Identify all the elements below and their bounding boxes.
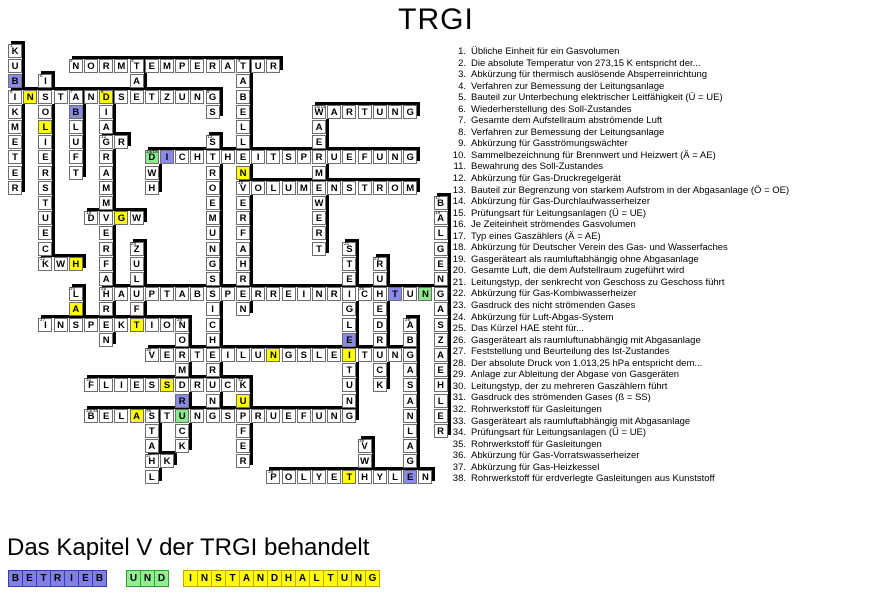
grid-cell[interactable]: P bbox=[221, 287, 235, 301]
grid-cell[interactable]: T bbox=[38, 196, 52, 210]
grid-cell[interactable]: 31F bbox=[84, 378, 98, 392]
grid-cell[interactable]: R bbox=[266, 59, 280, 73]
grid-cell[interactable]: S bbox=[342, 181, 356, 195]
grid-cell[interactable]: G bbox=[342, 409, 356, 423]
grid-cell[interactable]: T bbox=[342, 470, 356, 484]
grid-cell[interactable]: U bbox=[175, 409, 189, 423]
grid-cell[interactable]: G bbox=[403, 150, 417, 164]
grid-cell[interactable]: 29A bbox=[403, 318, 417, 332]
grid-cell[interactable]: S bbox=[145, 378, 159, 392]
grid-cell[interactable]: U bbox=[206, 378, 220, 392]
grid-cell[interactable]: N bbox=[23, 90, 37, 104]
grid-cell[interactable]: U bbox=[312, 409, 326, 423]
grid-cell[interactable]: T bbox=[266, 150, 280, 164]
grid-cell[interactable]: L bbox=[342, 318, 356, 332]
grid-cell[interactable]: E bbox=[342, 150, 356, 164]
grid-cell[interactable]: F bbox=[69, 150, 83, 164]
grid-cell[interactable]: I bbox=[99, 105, 113, 119]
grid-cell[interactable]: U bbox=[236, 394, 250, 408]
grid-cell[interactable]: U bbox=[266, 409, 280, 423]
grid-cell[interactable]: H bbox=[358, 470, 372, 484]
grid-cell[interactable]: 22K bbox=[38, 257, 52, 271]
grid-cell[interactable]: R bbox=[236, 211, 250, 225]
grid-cell[interactable]: 1K bbox=[8, 44, 22, 58]
grid-cell[interactable]: S bbox=[297, 348, 311, 362]
grid-cell[interactable]: R bbox=[434, 424, 448, 438]
grid-cell[interactable]: R bbox=[175, 394, 189, 408]
grid-cell[interactable]: T bbox=[388, 287, 402, 301]
grid-cell[interactable]: T bbox=[358, 348, 372, 362]
grid-cell[interactable]: N bbox=[388, 348, 402, 362]
grid-cell[interactable]: E bbox=[206, 196, 220, 210]
grid-cell[interactable]: I bbox=[38, 135, 52, 149]
grid-cell[interactable]: N bbox=[84, 90, 98, 104]
grid-cell[interactable]: M bbox=[99, 181, 113, 195]
grid-cell[interactable]: A bbox=[221, 59, 235, 73]
grid-cell[interactable]: L bbox=[145, 470, 159, 484]
grid-cell[interactable]: E bbox=[8, 166, 22, 180]
grid-cell[interactable]: H bbox=[145, 181, 159, 195]
grid-cell[interactable]: A bbox=[312, 120, 326, 134]
grid-cell[interactable]: F bbox=[130, 302, 144, 316]
grid-cell[interactable]: G bbox=[403, 348, 417, 362]
grid-cell[interactable]: F bbox=[236, 226, 250, 240]
grid-cell[interactable]: I bbox=[221, 348, 235, 362]
grid-cell[interactable]: B bbox=[8, 74, 22, 88]
grid-cell[interactable]: O bbox=[38, 105, 52, 119]
grid-cell[interactable]: 5I bbox=[38, 74, 52, 88]
grid-cell[interactable]: R bbox=[99, 59, 113, 73]
grid-cell[interactable]: A bbox=[114, 287, 128, 301]
grid-cell[interactable]: C bbox=[206, 318, 220, 332]
grid-cell[interactable]: U bbox=[251, 59, 265, 73]
grid-cell[interactable]: S bbox=[114, 90, 128, 104]
grid-cell[interactable]: G bbox=[114, 211, 128, 225]
grid-cell[interactable]: N bbox=[54, 318, 68, 332]
grid-cell[interactable]: 25H bbox=[99, 287, 113, 301]
grid-cell[interactable]: U bbox=[403, 287, 417, 301]
grid-cell[interactable]: R bbox=[206, 59, 220, 73]
grid-cell[interactable]: N bbox=[388, 105, 402, 119]
grid-cell[interactable]: G bbox=[434, 242, 448, 256]
grid-cell[interactable]: K bbox=[160, 454, 174, 468]
grid-cell[interactable]: L bbox=[236, 135, 250, 149]
grid-cell[interactable]: H bbox=[236, 257, 250, 271]
grid-cell[interactable]: I bbox=[206, 302, 220, 316]
grid-cell[interactable]: W bbox=[130, 211, 144, 225]
grid-cell[interactable]: Z bbox=[434, 333, 448, 347]
grid-cell[interactable]: A bbox=[403, 439, 417, 453]
grid-cell[interactable]: E bbox=[236, 105, 250, 119]
grid-cell[interactable]: G bbox=[342, 302, 356, 316]
grid-cell[interactable]: E bbox=[236, 287, 250, 301]
grid-cell[interactable]: B bbox=[190, 287, 204, 301]
grid-cell[interactable]: I bbox=[342, 348, 356, 362]
grid-cell[interactable]: T bbox=[206, 150, 220, 164]
grid-cell[interactable]: U bbox=[373, 348, 387, 362]
grid-cell[interactable]: A bbox=[99, 272, 113, 286]
grid-cell[interactable]: U bbox=[38, 211, 52, 225]
grid-cell[interactable]: 14/15D bbox=[145, 150, 159, 164]
grid-cell[interactable]: H bbox=[373, 287, 387, 301]
grid-cell[interactable]: U bbox=[373, 105, 387, 119]
grid-cell[interactable]: W bbox=[54, 257, 68, 271]
grid-cell[interactable]: M bbox=[8, 120, 22, 134]
grid-cell[interactable]: B bbox=[236, 90, 250, 104]
grid-cell[interactable]: R bbox=[99, 242, 113, 256]
grid-cell[interactable]: P bbox=[236, 409, 250, 423]
grid-cell[interactable]: L bbox=[236, 348, 250, 362]
grid-cell[interactable]: P bbox=[145, 287, 159, 301]
grid-cell[interactable]: 16V bbox=[236, 181, 250, 195]
grid-cell[interactable]: E bbox=[130, 378, 144, 392]
grid-cell[interactable]: E bbox=[160, 348, 174, 362]
grid-cell[interactable]: 32K bbox=[236, 378, 250, 392]
grid-cell[interactable]: E bbox=[312, 211, 326, 225]
grid-cell[interactable]: L bbox=[297, 470, 311, 484]
grid-cell[interactable]: D bbox=[373, 318, 387, 332]
grid-cell[interactable]: 7A bbox=[69, 90, 83, 104]
grid-cell[interactable]: O bbox=[175, 333, 189, 347]
grid-cell[interactable]: O bbox=[160, 318, 174, 332]
grid-cell[interactable]: E bbox=[236, 439, 250, 453]
grid-cell[interactable]: H bbox=[69, 257, 83, 271]
grid-cell[interactable]: 19A bbox=[434, 211, 448, 225]
grid-cell[interactable]: N bbox=[418, 470, 432, 484]
grid-cell[interactable]: 33/34B bbox=[84, 409, 98, 423]
grid-cell[interactable]: N bbox=[434, 272, 448, 286]
grid-cell[interactable]: U bbox=[130, 287, 144, 301]
grid-cell[interactable]: C bbox=[221, 378, 235, 392]
grid-cell[interactable]: E bbox=[99, 318, 113, 332]
grid-cell[interactable]: R bbox=[373, 181, 387, 195]
grid-cell[interactable]: E bbox=[434, 257, 448, 271]
grid-cell[interactable]: U bbox=[327, 150, 341, 164]
grid-cell[interactable]: T bbox=[54, 90, 68, 104]
grid-cell[interactable]: M bbox=[206, 211, 220, 225]
grid-cell[interactable]: O bbox=[84, 59, 98, 73]
grid-cell[interactable]: S bbox=[206, 272, 220, 286]
grid-cell[interactable]: A bbox=[130, 74, 144, 88]
grid-cell[interactable]: U bbox=[175, 90, 189, 104]
grid-cell[interactable]: U bbox=[251, 348, 265, 362]
grid-cell[interactable]: A bbox=[99, 166, 113, 180]
grid-cell[interactable]: R bbox=[190, 378, 204, 392]
grid-cell[interactable]: A bbox=[236, 74, 250, 88]
grid-cell[interactable]: U bbox=[282, 181, 296, 195]
grid-cell[interactable]: V bbox=[99, 211, 113, 225]
grid-cell[interactable]: M bbox=[114, 59, 128, 73]
grid-cell[interactable]: E bbox=[38, 226, 52, 240]
grid-cell[interactable]: N bbox=[206, 242, 220, 256]
grid-cell[interactable]: S bbox=[69, 318, 83, 332]
grid-cell[interactable]: T bbox=[190, 348, 204, 362]
grid-cell[interactable]: 35S bbox=[145, 409, 159, 423]
grid-cell[interactable]: E bbox=[145, 59, 159, 73]
grid-cell[interactable]: 6I bbox=[8, 90, 22, 104]
grid-cell[interactable]: R bbox=[8, 181, 22, 195]
grid-cell[interactable]: 30V bbox=[145, 348, 159, 362]
grid-cell[interactable]: R bbox=[312, 226, 326, 240]
grid-cell[interactable]: R bbox=[206, 166, 220, 180]
grid-cell[interactable]: E bbox=[373, 302, 387, 316]
grid-cell[interactable]: T bbox=[69, 166, 83, 180]
grid-cell[interactable]: R bbox=[251, 287, 265, 301]
grid-cell[interactable]: T bbox=[342, 257, 356, 271]
grid-cell[interactable]: N bbox=[403, 409, 417, 423]
grid-cell[interactable]: M bbox=[403, 181, 417, 195]
grid-cell[interactable]: E bbox=[206, 348, 220, 362]
grid-cell[interactable]: 23R bbox=[373, 257, 387, 271]
grid-cell[interactable]: F bbox=[99, 257, 113, 271]
grid-cell[interactable]: N bbox=[388, 150, 402, 164]
grid-cell[interactable]: M bbox=[160, 59, 174, 73]
grid-cell[interactable]: R bbox=[99, 150, 113, 164]
grid-cell[interactable]: W bbox=[145, 166, 159, 180]
grid-cell[interactable]: M bbox=[99, 196, 113, 210]
grid-cell[interactable]: 37H bbox=[145, 454, 159, 468]
grid-cell[interactable]: F bbox=[358, 150, 372, 164]
grid-cell[interactable]: A bbox=[175, 287, 189, 301]
grid-cell[interactable]: S bbox=[221, 409, 235, 423]
grid-cell[interactable]: L bbox=[69, 120, 83, 134]
grid-cell[interactable]: H bbox=[434, 378, 448, 392]
grid-cell[interactable]: S bbox=[206, 287, 220, 301]
grid-cell[interactable]: G bbox=[282, 348, 296, 362]
grid-cell[interactable]: A bbox=[130, 409, 144, 423]
grid-cell[interactable]: Z bbox=[160, 90, 174, 104]
grid-cell[interactable]: 12G bbox=[99, 135, 113, 149]
grid-cell[interactable]: T bbox=[145, 90, 159, 104]
grid-cell[interactable]: F bbox=[297, 409, 311, 423]
grid-cell[interactable]: L bbox=[312, 348, 326, 362]
grid-cell[interactable]: K bbox=[114, 318, 128, 332]
grid-cell[interactable]: E bbox=[342, 333, 356, 347]
grid-cell[interactable]: E bbox=[99, 409, 113, 423]
grid-cell[interactable]: K bbox=[175, 439, 189, 453]
grid-cell[interactable]: M bbox=[297, 181, 311, 195]
grid-cell[interactable]: T bbox=[342, 363, 356, 377]
grid-cell[interactable]: N bbox=[342, 394, 356, 408]
grid-cell[interactable]: T bbox=[8, 150, 22, 164]
grid-cell[interactable]: C bbox=[38, 242, 52, 256]
grid-cell[interactable]: Y bbox=[312, 470, 326, 484]
grid-cell[interactable]: 3T bbox=[130, 59, 144, 73]
grid-cell[interactable]: G bbox=[206, 409, 220, 423]
grid-cell[interactable]: L bbox=[38, 120, 52, 134]
grid-cell[interactable]: I bbox=[342, 287, 356, 301]
grid-cell[interactable]: S bbox=[206, 105, 220, 119]
grid-cell[interactable]: 13S bbox=[206, 135, 220, 149]
grid-cell[interactable]: U bbox=[206, 226, 220, 240]
grid-cell[interactable]: L bbox=[130, 272, 144, 286]
grid-cell[interactable]: N bbox=[266, 348, 280, 362]
grid-cell[interactable]: U bbox=[8, 59, 22, 73]
grid-cell[interactable]: 8D bbox=[99, 90, 113, 104]
grid-cell[interactable]: R bbox=[38, 166, 52, 180]
grid-cell[interactable]: S bbox=[403, 378, 417, 392]
grid-cell[interactable]: L bbox=[434, 226, 448, 240]
grid-cell[interactable]: 18D bbox=[84, 211, 98, 225]
grid-cell[interactable]: R bbox=[175, 348, 189, 362]
grid-cell[interactable]: C bbox=[175, 150, 189, 164]
grid-cell[interactable]: G bbox=[403, 454, 417, 468]
grid-cell[interactable]: U bbox=[342, 378, 356, 392]
grid-cell[interactable]: A bbox=[434, 302, 448, 316]
grid-cell[interactable]: E bbox=[8, 135, 22, 149]
grid-cell[interactable]: A bbox=[327, 105, 341, 119]
grid-cell[interactable]: I bbox=[114, 378, 128, 392]
grid-cell[interactable]: E bbox=[342, 272, 356, 286]
grid-cell[interactable]: N bbox=[190, 90, 204, 104]
grid-cell[interactable]: B bbox=[403, 333, 417, 347]
grid-cell[interactable]: N bbox=[418, 287, 432, 301]
grid-cell[interactable]: M bbox=[312, 166, 326, 180]
grid-cell[interactable]: T bbox=[130, 318, 144, 332]
grid-cell[interactable]: S bbox=[38, 181, 52, 195]
grid-cell[interactable]: L bbox=[434, 394, 448, 408]
grid-cell[interactable]: N bbox=[99, 333, 113, 347]
grid-cell[interactable]: E bbox=[190, 59, 204, 73]
grid-cell[interactable]: E bbox=[99, 226, 113, 240]
grid-cell[interactable]: 26C bbox=[358, 287, 372, 301]
grid-cell[interactable]: S bbox=[38, 90, 52, 104]
grid-cell[interactable]: H bbox=[206, 333, 220, 347]
grid-cell[interactable]: T bbox=[160, 409, 174, 423]
grid-cell[interactable]: R bbox=[236, 454, 250, 468]
grid-cell[interactable]: I bbox=[251, 150, 265, 164]
grid-cell[interactable]: P bbox=[84, 318, 98, 332]
grid-cell[interactable]: L bbox=[114, 409, 128, 423]
grid-cell[interactable]: 10/11W bbox=[312, 105, 326, 119]
grid-cell[interactable]: 28N bbox=[175, 318, 189, 332]
grid-cell[interactable]: K bbox=[8, 105, 22, 119]
grid-cell[interactable]: A bbox=[403, 363, 417, 377]
grid-cell[interactable]: F bbox=[236, 424, 250, 438]
grid-cell[interactable]: L bbox=[236, 120, 250, 134]
grid-cell[interactable]: 36V bbox=[358, 439, 372, 453]
grid-cell[interactable]: E bbox=[282, 409, 296, 423]
grid-cell[interactable]: P bbox=[297, 150, 311, 164]
grid-cell[interactable]: L bbox=[266, 181, 280, 195]
grid-cell[interactable]: T bbox=[145, 424, 159, 438]
grid-cell[interactable]: 2N bbox=[69, 59, 83, 73]
grid-cell[interactable]: H bbox=[190, 150, 204, 164]
grid-cell[interactable]: I bbox=[297, 287, 311, 301]
grid-cell[interactable]: N bbox=[327, 181, 341, 195]
grid-cell[interactable]: M bbox=[175, 363, 189, 377]
grid-cell[interactable]: 21S bbox=[342, 242, 356, 256]
grid-cell[interactable]: E bbox=[434, 409, 448, 423]
grid-cell[interactable]: A bbox=[145, 439, 159, 453]
grid-cell[interactable]: 24L bbox=[69, 287, 83, 301]
grid-cell[interactable]: T bbox=[358, 105, 372, 119]
grid-cell[interactable]: L bbox=[388, 470, 402, 484]
grid-cell[interactable]: H bbox=[221, 150, 235, 164]
grid-cell[interactable]: C bbox=[373, 363, 387, 377]
grid-cell[interactable]: W bbox=[358, 454, 372, 468]
grid-cell[interactable]: U bbox=[373, 272, 387, 286]
grid-cell[interactable]: E bbox=[327, 348, 341, 362]
grid-cell[interactable]: T bbox=[358, 181, 372, 195]
grid-cell[interactable]: 38P bbox=[266, 470, 280, 484]
grid-cell[interactable]: K bbox=[373, 378, 387, 392]
grid-cell[interactable]: O bbox=[282, 470, 296, 484]
grid-cell[interactable]: A bbox=[236, 242, 250, 256]
grid-cell[interactable]: B bbox=[69, 105, 83, 119]
grid-cell[interactable]: E bbox=[282, 287, 296, 301]
grid-cell[interactable]: L bbox=[403, 424, 417, 438]
grid-cell[interactable]: N bbox=[190, 409, 204, 423]
grid-cell[interactable]: E bbox=[130, 90, 144, 104]
grid-cell[interactable]: U bbox=[69, 135, 83, 149]
grid-cell[interactable]: E bbox=[236, 150, 250, 164]
grid-cell[interactable]: 4T bbox=[236, 59, 250, 73]
grid-cell[interactable]: R bbox=[342, 105, 356, 119]
grid-cell[interactable]: D bbox=[175, 378, 189, 392]
grid-cell[interactable]: T bbox=[312, 242, 326, 256]
grid-cell[interactable]: N bbox=[236, 302, 250, 316]
grid-cell[interactable]: R bbox=[99, 302, 113, 316]
grid-cell[interactable]: N bbox=[236, 166, 250, 180]
grid-cell[interactable]: I bbox=[145, 318, 159, 332]
grid-cell[interactable]: G bbox=[206, 257, 220, 271]
grid-cell[interactable]: U bbox=[130, 257, 144, 271]
grid-cell[interactable]: N bbox=[312, 287, 326, 301]
grid-cell[interactable]: P bbox=[175, 59, 189, 73]
grid-cell[interactable]: G bbox=[403, 105, 417, 119]
grid-cell[interactable]: A bbox=[403, 394, 417, 408]
grid-cell[interactable]: A bbox=[69, 302, 83, 316]
grid-cell[interactable]: W bbox=[312, 196, 326, 210]
grid-cell[interactable]: O bbox=[206, 181, 220, 195]
grid-cell[interactable]: R bbox=[266, 287, 280, 301]
grid-cell[interactable]: R bbox=[114, 135, 128, 149]
grid-cell[interactable]: R bbox=[373, 333, 387, 347]
grid-cell[interactable]: R bbox=[236, 272, 250, 286]
grid-cell[interactable]: 20Z bbox=[130, 242, 144, 256]
grid-cell[interactable]: S bbox=[282, 150, 296, 164]
grid-cell[interactable]: O bbox=[388, 181, 402, 195]
grid-cell[interactable]: O bbox=[251, 181, 265, 195]
grid-cell[interactable]: R bbox=[312, 150, 326, 164]
grid-cell[interactable]: S bbox=[160, 378, 174, 392]
grid-cell[interactable]: N bbox=[206, 394, 220, 408]
grid-cell[interactable]: L bbox=[99, 378, 113, 392]
grid-cell[interactable]: Y bbox=[373, 470, 387, 484]
grid-cell[interactable]: 9G bbox=[206, 90, 220, 104]
grid-cell[interactable]: T bbox=[160, 287, 174, 301]
grid-cell[interactable]: N bbox=[327, 409, 341, 423]
grid-cell[interactable]: E bbox=[312, 181, 326, 195]
grid-cell[interactable]: R bbox=[327, 287, 341, 301]
grid-cell[interactable]: E bbox=[403, 470, 417, 484]
grid-cell[interactable]: C bbox=[175, 424, 189, 438]
grid-cell[interactable]: E bbox=[327, 470, 341, 484]
grid-cell[interactable]: 27I bbox=[38, 318, 52, 332]
grid-cell[interactable]: U bbox=[373, 150, 387, 164]
grid-cell[interactable]: E bbox=[236, 196, 250, 210]
grid-cell[interactable]: E bbox=[38, 150, 52, 164]
grid-cell[interactable]: E bbox=[312, 135, 326, 149]
grid-cell[interactable]: I bbox=[160, 150, 174, 164]
grid-cell[interactable]: S bbox=[434, 318, 448, 332]
grid-cell[interactable]: A bbox=[434, 348, 448, 362]
grid-cell[interactable]: R bbox=[206, 363, 220, 377]
grid-cell[interactable]: A bbox=[99, 120, 113, 134]
grid-cell[interactable]: E bbox=[434, 363, 448, 377]
grid-cell[interactable]: R bbox=[251, 409, 265, 423]
